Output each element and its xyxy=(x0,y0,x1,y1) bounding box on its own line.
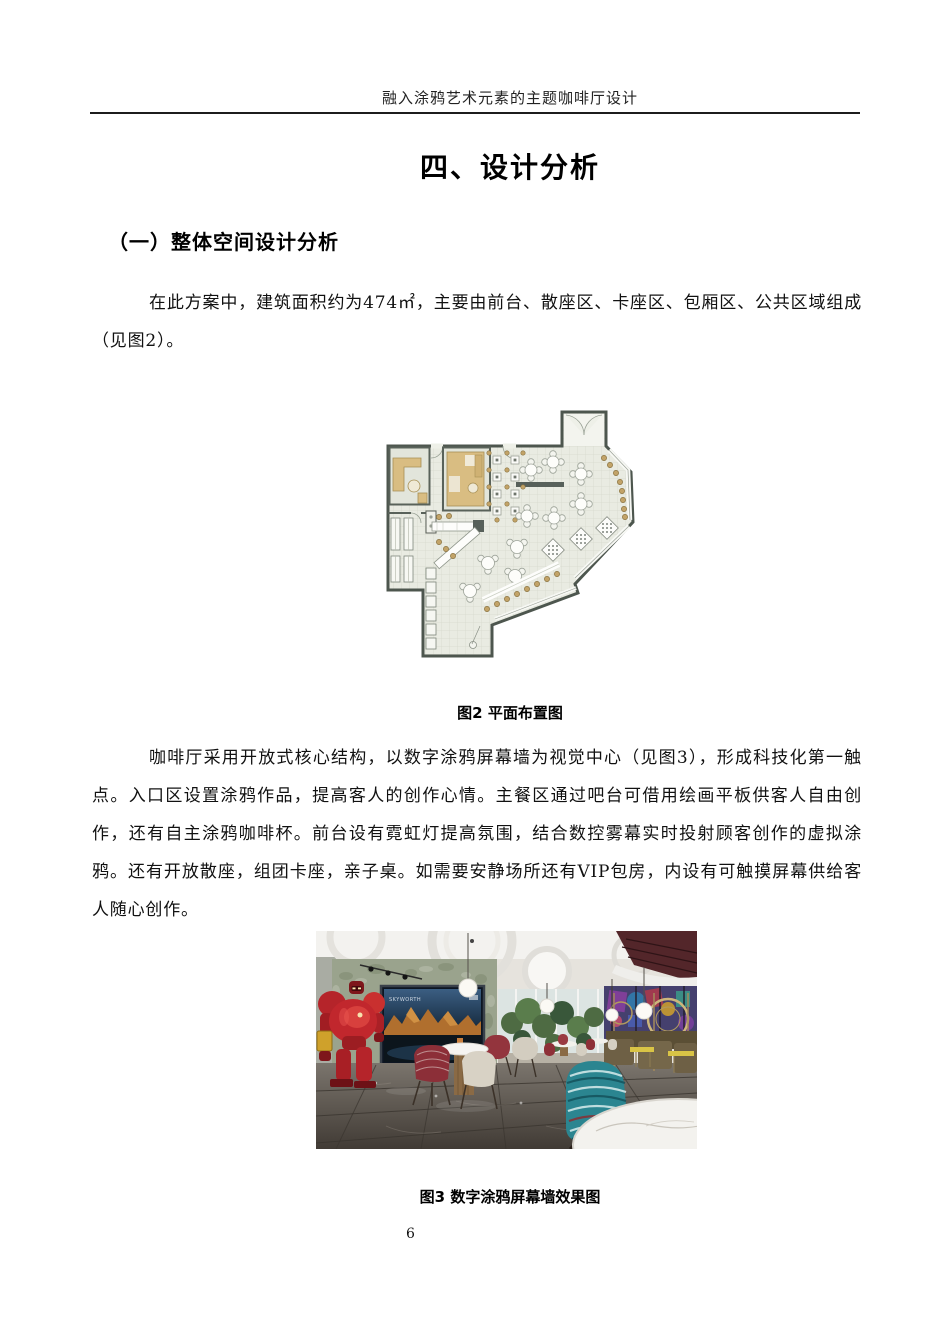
paragraph-overview: 在此方案中，建筑面积约为474㎡，主要由前台、散座区、卡座区、包厢区、公共区域组… xyxy=(92,284,862,360)
figure2-caption: 图2 平面布置图 xyxy=(70,702,950,723)
chapter-title: 四、设计分析 xyxy=(70,146,950,186)
figure3-caption: 图3 数字涂鸦屏幕墙效果图 xyxy=(70,1186,950,1207)
paragraph-design: 咖啡厅采用开放式核心结构，以数字涂鸦屏幕墙为视觉中心（见图3），形成科技化第一触… xyxy=(92,739,862,929)
screen-brand-label: SKYWORTH xyxy=(389,997,421,1003)
booth-table-top xyxy=(630,1047,654,1052)
floor-plan-drawing xyxy=(385,398,645,662)
figure-floor-plan xyxy=(385,398,645,662)
header-rule xyxy=(90,112,860,114)
figure-render-photo: SKYWORTH xyxy=(316,931,697,1149)
render-drawing: SKYWORTH xyxy=(316,931,697,1149)
vip-room-2 xyxy=(443,448,490,511)
booth-table-top xyxy=(668,1051,694,1056)
section-heading: （一）整体空间设计分析 xyxy=(108,226,339,255)
vip-room-1 xyxy=(390,448,430,505)
running-head: 融入涂鸦艺术元素的主题咖啡厅设计 xyxy=(70,87,950,108)
chair-cream xyxy=(462,1051,496,1087)
document-page: 融入涂鸦艺术元素的主题咖啡厅设计 四、设计分析 （一）整体空间设计分析 在此方案… xyxy=(0,0,950,1344)
page-number: 6 xyxy=(406,1226,415,1242)
